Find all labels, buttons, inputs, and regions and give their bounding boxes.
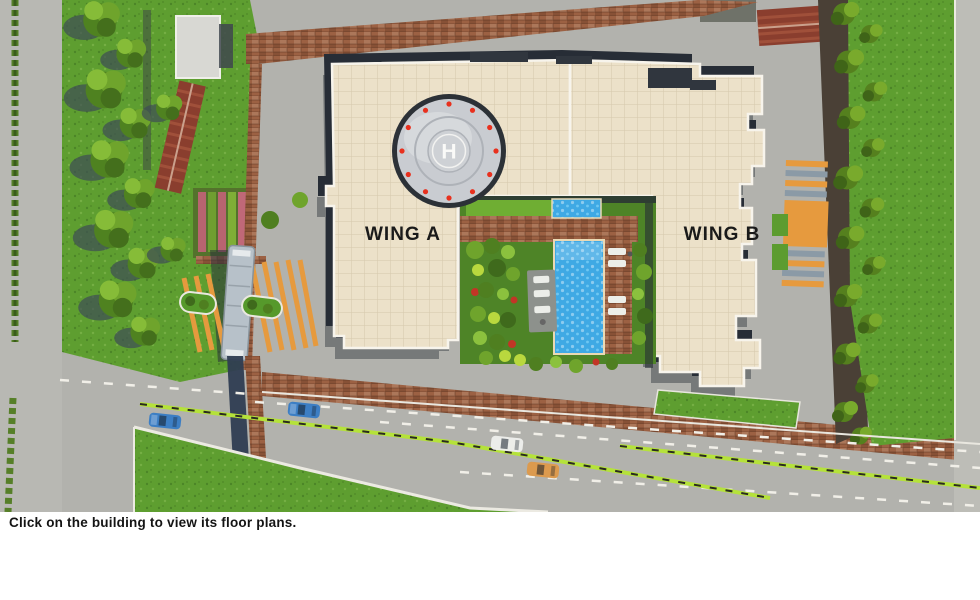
traffic-island xyxy=(179,291,217,315)
traffic-island xyxy=(241,295,283,320)
east-lawn-sliver xyxy=(772,244,788,270)
site-plan-page: H WING A WING B xyxy=(0,0,980,600)
sun-lounger xyxy=(534,306,550,314)
helipad-letter: H xyxy=(441,141,456,164)
helipad: H xyxy=(392,94,506,208)
sun-lounger xyxy=(534,290,550,298)
courtyard-garden xyxy=(460,196,656,373)
east-lawn-sliver xyxy=(772,214,788,236)
sun-lounger xyxy=(533,276,549,284)
upper-pool xyxy=(552,199,601,218)
pool-deck xyxy=(527,270,557,333)
site-plan: H WING A WING B xyxy=(0,0,980,512)
caption: Click on the building to view its floor … xyxy=(9,515,296,530)
wing-b-label: WING B xyxy=(684,224,761,245)
east-road xyxy=(954,0,980,512)
west-road xyxy=(0,0,62,512)
wing-a-label: WING A xyxy=(365,224,441,245)
